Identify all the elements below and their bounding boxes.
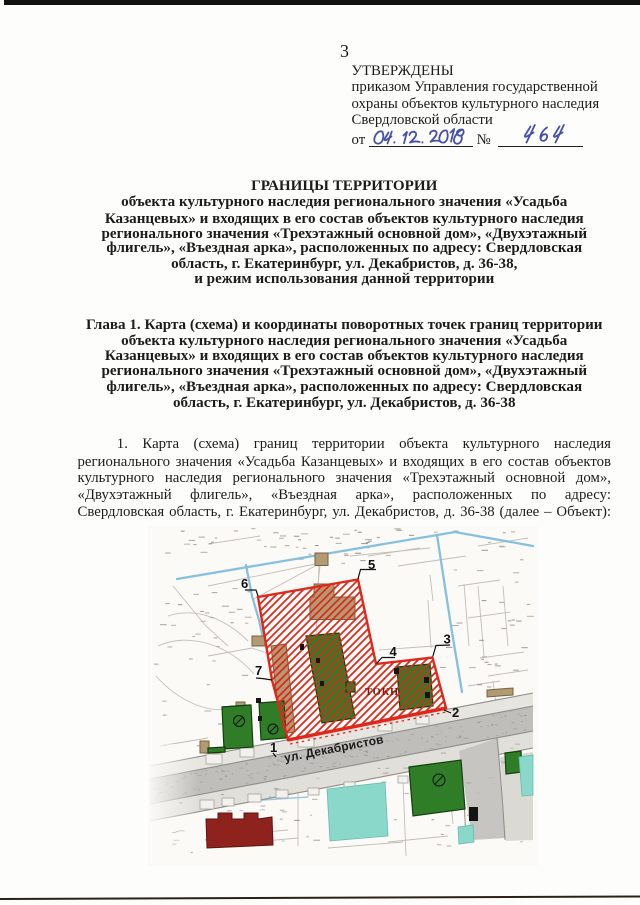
svg-text:2: 2 — [452, 705, 459, 720]
svg-text:4: 4 — [390, 644, 398, 659]
svg-text:7: 7 — [255, 663, 262, 678]
svg-text:1: 1 — [270, 740, 277, 755]
svg-text:ТОКН: ТОКН — [365, 687, 399, 698]
svg-text:6: 6 — [241, 576, 248, 591]
svg-text:3: 3 — [444, 632, 451, 647]
